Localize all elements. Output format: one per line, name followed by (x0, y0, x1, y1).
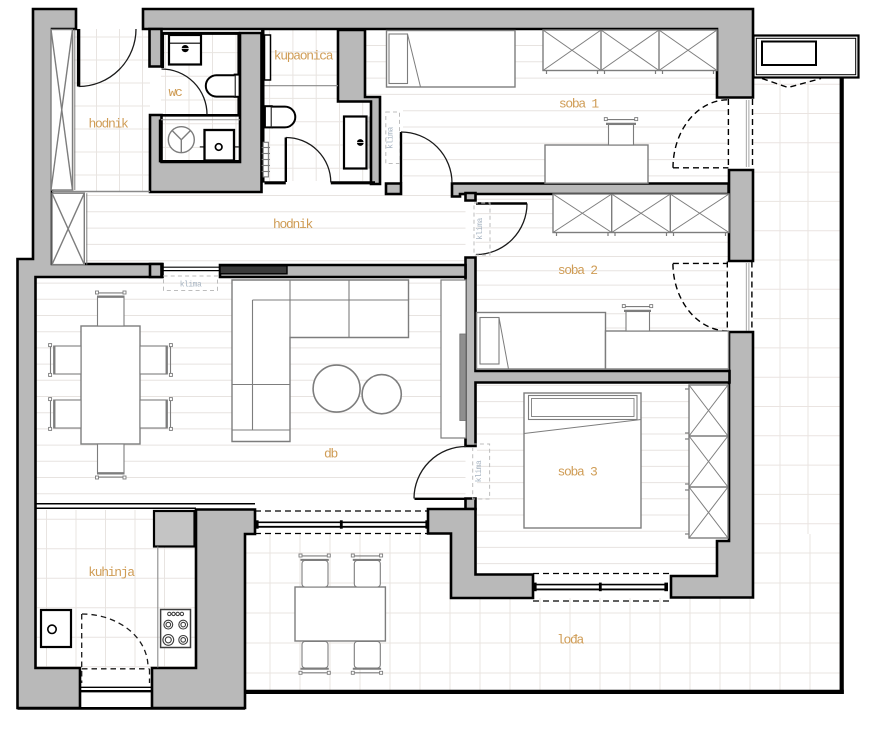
svg-text:db: db (324, 447, 338, 462)
svg-text:soba 2: soba 2 (558, 263, 598, 278)
svg-text:klima: klima (180, 280, 202, 289)
svg-text:soba 3: soba 3 (557, 465, 597, 480)
svg-text:kuhinja: kuhinja (88, 565, 135, 580)
svg-text:soba 1: soba 1 (559, 96, 600, 111)
svg-text:klima: klima (387, 127, 396, 149)
svg-text:hodnik: hodnik (88, 117, 129, 132)
svg-text:wc: wc (168, 85, 182, 100)
svg-text:hodnik: hodnik (273, 217, 314, 232)
svg-text:klima: klima (475, 460, 484, 482)
svg-text:lođa: lođa (557, 633, 585, 648)
svg-text:klima: klima (476, 218, 485, 240)
svg-text:kupaonica: kupaonica (274, 49, 334, 64)
